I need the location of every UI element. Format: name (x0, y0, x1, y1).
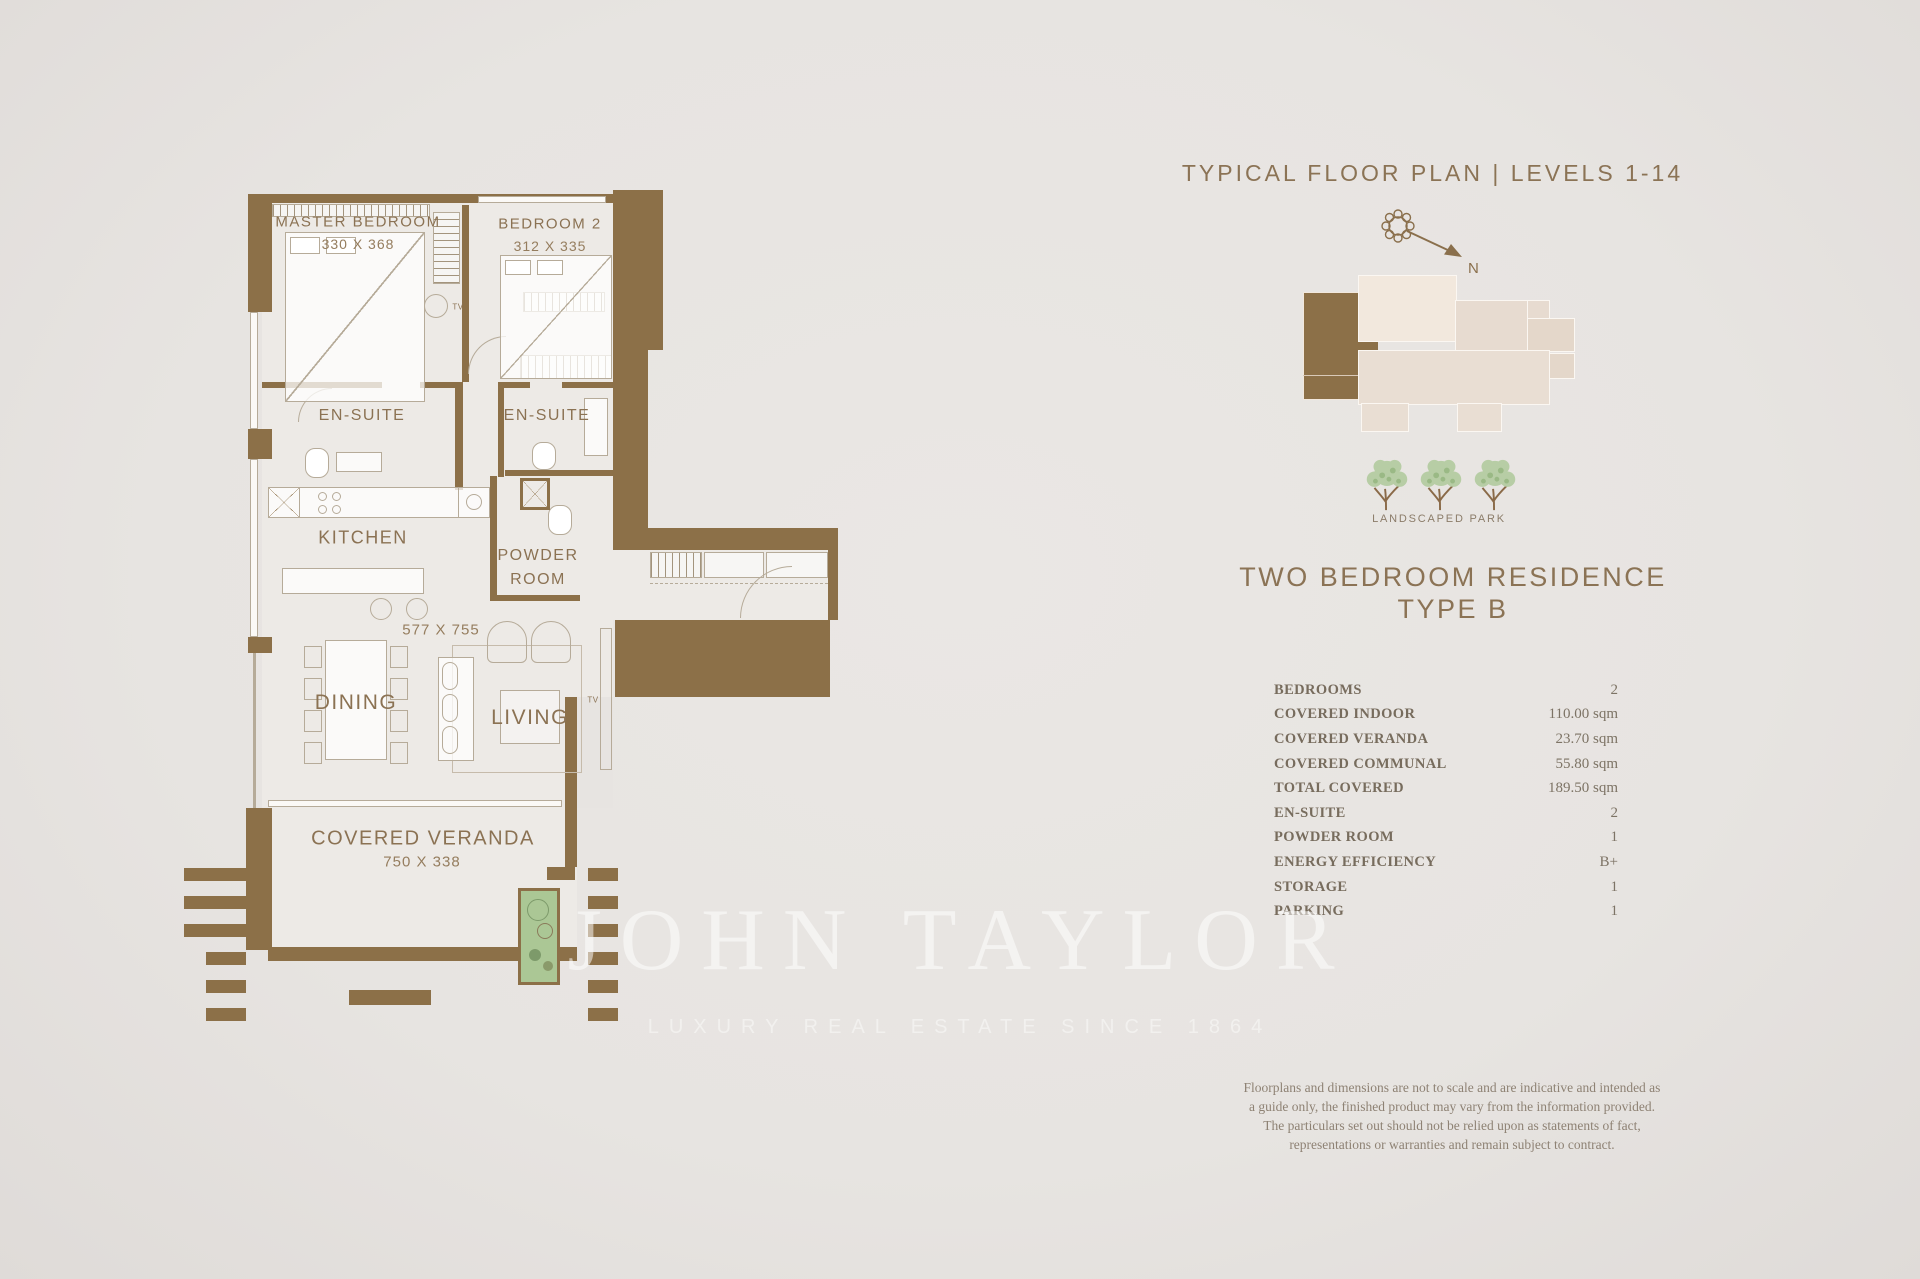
wall (462, 205, 469, 382)
room-label-kitchen: KITCHEN (318, 528, 408, 549)
planter (518, 888, 560, 985)
residence-title-line1: TWO BEDROOM RESIDENCE (1203, 562, 1703, 593)
pillow (290, 237, 320, 254)
park-label: LANDSCAPED PARK (1319, 513, 1559, 525)
window (250, 459, 258, 637)
louver-fin (206, 952, 246, 965)
room-dims-master-bedroom: 330 X 368 (322, 236, 395, 252)
wall (248, 194, 272, 312)
spec-label: EN-SUITE (1274, 805, 1346, 822)
spec-value: 55.80 sqm (1555, 756, 1618, 773)
chair (304, 646, 322, 668)
louver-fin (588, 1008, 618, 1021)
louver-fin (588, 924, 618, 937)
spec-table: BEDROOMS 2 COVERED INDOOR 110.00 sqm COV… (1274, 678, 1618, 924)
chair (304, 742, 322, 764)
wall (613, 190, 663, 350)
plant (543, 961, 553, 971)
room-label-veranda: COVERED VERANDA (311, 828, 535, 851)
hob-burner (332, 505, 341, 514)
compass-icon (1352, 200, 1472, 264)
toilet (305, 448, 329, 478)
room-dims-living: 577 X 755 (402, 622, 479, 639)
spec-row: ENERGY EFFICIENCY B+ (1274, 850, 1618, 875)
spec-label: ENERGY EFFICIENCY (1274, 854, 1436, 871)
spec-value: B+ (1600, 854, 1618, 871)
wall (562, 382, 613, 388)
shaft (520, 478, 550, 510)
spec-value: 23.70 sqm (1555, 731, 1618, 748)
page-title: TYPICAL FLOOR PLAN | LEVELS 1-14 (1180, 160, 1685, 187)
louver-fin (184, 924, 246, 937)
louver-fin (588, 868, 618, 881)
wall (248, 637, 272, 653)
fridge-dial (466, 494, 482, 510)
plant (529, 949, 541, 961)
wall (828, 548, 838, 620)
spec-row: COVERED COMMUNAL 55.80 sqm (1274, 752, 1618, 777)
tree-icon (1470, 458, 1520, 512)
louver-fin (206, 1008, 246, 1021)
wall (490, 595, 580, 601)
spec-row: BEDROOMS 2 (1274, 678, 1618, 703)
toilet (532, 442, 556, 470)
spec-row: POWDER ROOM 1 (1274, 826, 1618, 851)
keyplan-block (1358, 275, 1457, 342)
spec-label: COVERED VERANDA (1274, 731, 1428, 748)
park-trees (1362, 458, 1522, 512)
hob-burner (332, 492, 341, 501)
room-label-ensuite2: EN-SUITE (504, 407, 591, 425)
spec-row: COVERED INDOOR 110.00 sqm (1274, 703, 1618, 728)
room-label-powder-line1: POWDER (498, 547, 579, 565)
tv-stand (424, 294, 448, 318)
keyplan-block (1548, 353, 1575, 379)
page: MASTER BEDROOM 330 X 368 BEDROOM 2 312 X… (0, 0, 1920, 1279)
kitchen-counter (268, 487, 490, 518)
disclaimer-text: Floorplans and dimensions are not to sca… (1242, 1078, 1662, 1155)
wall (505, 470, 613, 476)
veranda-edge-line (253, 653, 256, 808)
room-label-powder-line2: ROOM (510, 571, 566, 589)
wall (648, 528, 838, 550)
spec-value: 189.50 sqm (1548, 780, 1618, 797)
spec-value: 1 (1611, 829, 1619, 846)
spec-row: PARKING 1 (1274, 899, 1618, 924)
window (250, 312, 258, 429)
louver-fin (184, 868, 246, 881)
spec-value: 1 (1611, 903, 1619, 920)
armchair (487, 621, 527, 663)
tv-console (600, 628, 612, 770)
spec-row: COVERED VERANDA 23.70 sqm (1274, 727, 1618, 752)
spec-label: BEDROOMS (1274, 682, 1362, 699)
tv-label: TV (587, 696, 598, 705)
louver-fin (206, 980, 246, 993)
tv-label: TV (452, 303, 463, 312)
spec-row: STORAGE 1 (1274, 875, 1618, 900)
spec-value: 2 (1611, 805, 1619, 822)
keyplan-block (1361, 403, 1409, 432)
keyplan-block (1358, 350, 1550, 405)
chair (390, 646, 408, 668)
veranda-base-wall (268, 947, 518, 961)
bed (285, 232, 425, 402)
toilet (548, 505, 572, 535)
building-core (615, 620, 830, 697)
kitchen-sink (268, 487, 300, 518)
louver-bar (246, 808, 272, 950)
sink-counter (336, 452, 382, 472)
keyplan-block (1457, 403, 1502, 432)
wall (613, 350, 648, 550)
spec-label: COVERED INDOOR (1274, 706, 1415, 723)
keyplan-block (1455, 300, 1529, 352)
veranda-base-wall (560, 947, 577, 961)
kitchen-island (282, 568, 424, 594)
spec-label: PARKING (1274, 903, 1344, 920)
sliding-door (268, 800, 562, 807)
keyplan-block (1527, 318, 1575, 352)
hob-burner (318, 505, 327, 514)
entry-closet (650, 552, 702, 578)
sofa-cushion (442, 662, 458, 690)
louver-fin (588, 896, 618, 909)
wall (455, 382, 463, 490)
spec-value: 1 (1611, 879, 1619, 896)
tree-icon (1416, 458, 1466, 512)
armchair (531, 621, 571, 663)
room-label-bedroom2: BEDROOM 2 (498, 216, 602, 233)
wall (498, 388, 504, 477)
room-label-living: LIVING (491, 706, 569, 730)
louver-fin (184, 896, 246, 909)
stool (370, 598, 392, 620)
plant (527, 899, 549, 921)
sofa-cushion (442, 726, 458, 754)
spec-label: STORAGE (1274, 879, 1347, 896)
residence-title-line2: TYPE B (1203, 594, 1703, 625)
window (478, 196, 606, 203)
keyplan (1290, 265, 1620, 440)
wall (248, 429, 272, 459)
wall (349, 990, 431, 1005)
wall (547, 867, 575, 880)
spec-label: COVERED COMMUNAL (1274, 756, 1447, 773)
chair (390, 742, 408, 764)
entry-closet (704, 552, 764, 578)
keyplan-block (1527, 300, 1550, 320)
floor-hall-connector (613, 548, 648, 620)
room-dims-veranda: 750 X 338 (383, 854, 460, 871)
pillow (537, 260, 563, 275)
room-label-dining: DINING (315, 691, 398, 715)
hob-burner (318, 492, 327, 501)
room-dims-bedroom2: 312 X 335 (514, 238, 587, 254)
spec-row: EN-SUITE 2 (1274, 801, 1618, 826)
plant (537, 923, 553, 939)
louver-fin (588, 980, 618, 993)
room-label-ensuite1: EN-SUITE (319, 407, 406, 425)
tree-icon (1362, 458, 1412, 512)
spec-label: POWDER ROOM (1274, 829, 1394, 846)
spec-value: 110.00 sqm (1549, 706, 1618, 723)
spec-value: 2 (1611, 682, 1619, 699)
stool (406, 598, 428, 620)
keyplan-unit-highlight-line (1303, 375, 1358, 376)
wall (490, 476, 497, 601)
spec-row: TOTAL COVERED 189.50 sqm (1274, 776, 1618, 801)
room-label-master-bedroom: MASTER BEDROOM (275, 214, 440, 231)
sofa-cushion (442, 694, 458, 722)
pillow (505, 260, 531, 275)
spec-label: TOTAL COVERED (1274, 780, 1404, 797)
closet-dash-line (650, 583, 828, 584)
louver-fin (588, 952, 618, 965)
floor-plan: MASTER BEDROOM 330 X 368 BEDROOM 2 312 X… (0, 0, 960, 1279)
